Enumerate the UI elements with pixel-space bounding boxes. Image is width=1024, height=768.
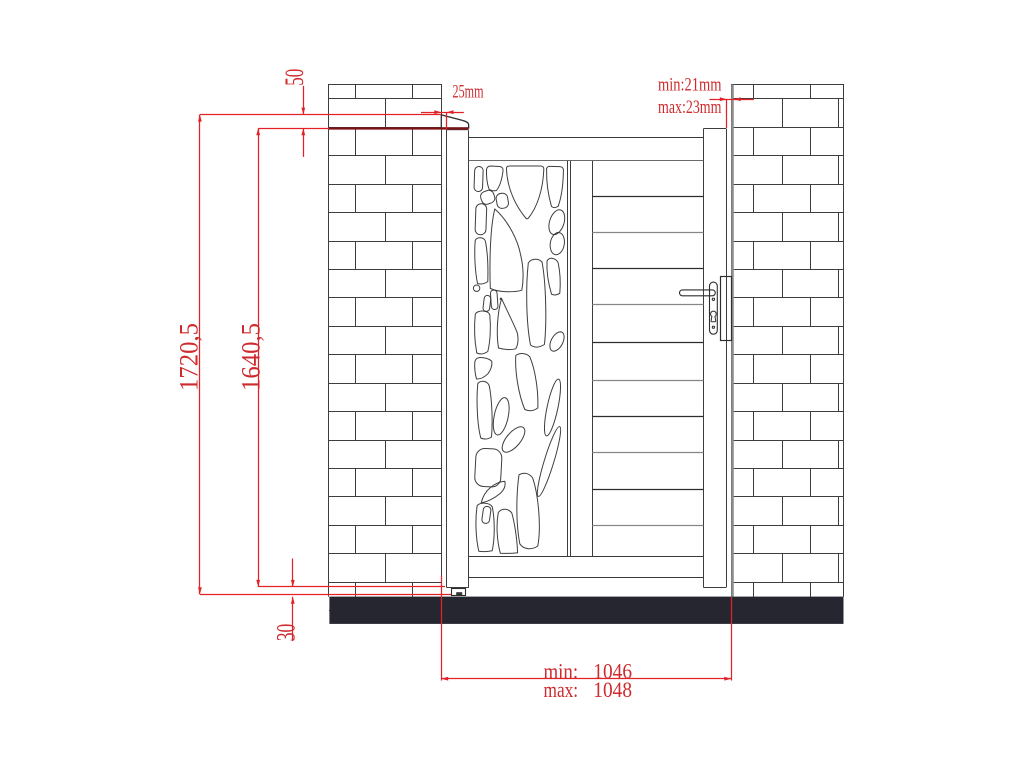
svg-text:50: 50 bbox=[280, 69, 309, 86]
svg-text:1720,5: 1720,5 bbox=[175, 323, 204, 391]
svg-text:max:: max: bbox=[544, 677, 579, 702]
svg-text:30: 30 bbox=[271, 624, 300, 642]
svg-text:max:23mm: max:23mm bbox=[658, 97, 722, 118]
svg-text:25mm: 25mm bbox=[453, 82, 484, 103]
svg-text:1640,5: 1640,5 bbox=[237, 323, 266, 391]
svg-text:min:21mm: min:21mm bbox=[658, 74, 722, 95]
svg-text:1048: 1048 bbox=[593, 677, 632, 702]
